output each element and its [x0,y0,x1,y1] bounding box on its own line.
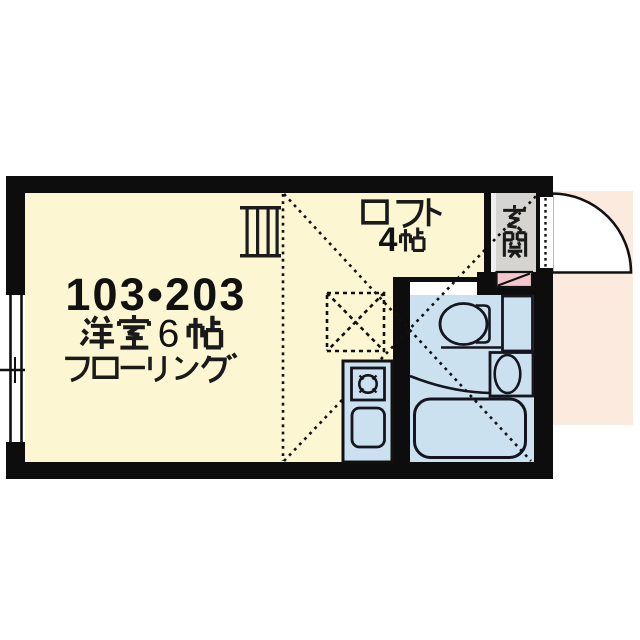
svg-text:103•203: 103•203 [65,269,246,320]
svg-text:6: 6 [158,313,180,356]
svg-text:4: 4 [379,221,398,259]
